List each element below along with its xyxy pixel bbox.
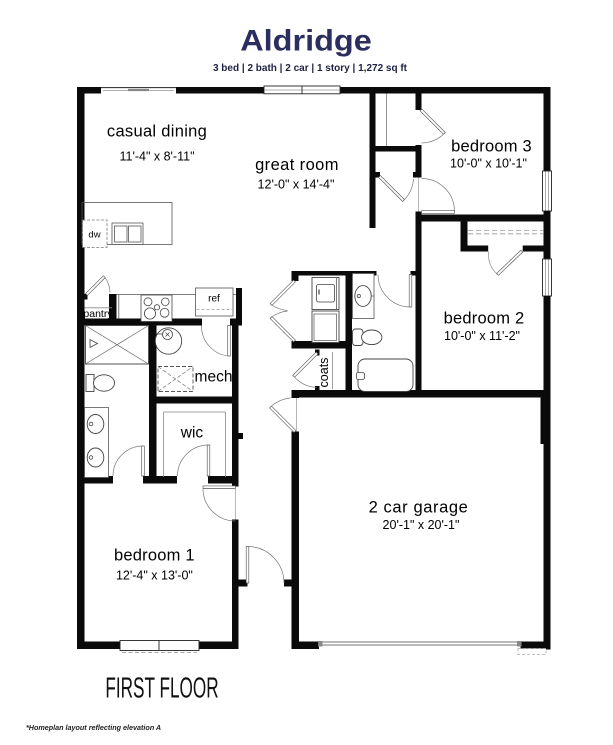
svg-text:great room: great room — [255, 156, 339, 174]
svg-text:10'-0" x 11'-2": 10'-0" x 11'-2" — [444, 329, 520, 343]
svg-text:bedroom 1: bedroom 1 — [114, 547, 195, 565]
svg-text:wic: wic — [180, 425, 204, 442]
svg-text:ref: ref — [208, 294, 220, 305]
svg-text:11'-4" x 8'-11": 11'-4" x 8'-11" — [119, 150, 194, 164]
svg-text:dw: dw — [88, 230, 100, 241]
svg-text:bedroom 2: bedroom 2 — [444, 310, 525, 328]
svg-text:FIRST FLOOR: FIRST FLOOR — [105, 672, 218, 705]
svg-text:Aldridge: Aldridge — [240, 24, 372, 57]
svg-text:12'-4" x 13'-0": 12'-4" x 13'-0" — [116, 569, 193, 583]
svg-text:mech: mech — [195, 369, 233, 386]
svg-text:20'-1" x 20'-1": 20'-1" x 20'-1" — [383, 518, 460, 532]
svg-text:bedroom 3: bedroom 3 — [451, 137, 532, 155]
svg-text:coats: coats — [317, 358, 331, 388]
svg-text:2 car garage: 2 car garage — [369, 499, 469, 517]
svg-text:pantry: pantry — [83, 308, 113, 320]
svg-text:3 bed | 2 bath | 2 car | 1 sto: 3 bed | 2 bath | 2 car | 1 story | 1,272… — [213, 63, 408, 74]
svg-text:casual dining: casual dining — [107, 123, 207, 141]
svg-text:12'-0" x 14'-4": 12'-0" x 14'-4" — [258, 177, 335, 191]
svg-text:10'-0" x 10'-1": 10'-0" x 10'-1" — [450, 156, 527, 170]
svg-text:*Homeplan layout reflecting el: *Homeplan layout reflecting elevation A — [26, 723, 161, 732]
